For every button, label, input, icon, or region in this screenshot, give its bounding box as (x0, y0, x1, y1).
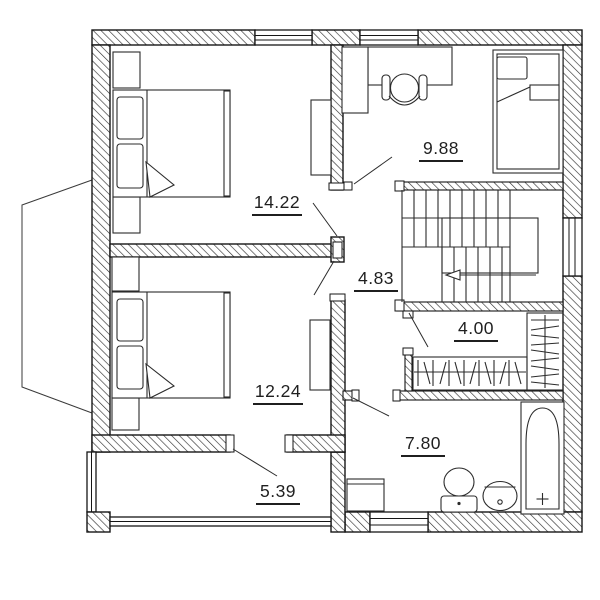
wall-bedroom2-balcony-right (287, 435, 345, 452)
wall-bedroom2-balcony-left (92, 435, 230, 452)
wall-top-mid (312, 30, 360, 45)
label-bedroom-1: 14.22 (254, 192, 300, 212)
wall-hall-bedroom2 (331, 300, 345, 452)
label-bathroom: 7.80 (405, 433, 441, 453)
floor-plan-page: 14.22 9.88 4.83 4.00 12.24 7.80 5.39 (0, 0, 600, 600)
label-balcony: 5.39 (260, 481, 296, 501)
nightstand (113, 52, 140, 88)
label-kids-room: 9.88 (423, 138, 459, 158)
washing-machine (347, 479, 384, 511)
dresser (310, 320, 330, 390)
wall-top-left (92, 30, 255, 45)
wall-bedroom1-kidsroom (331, 45, 343, 190)
wall-balcony-side (331, 452, 345, 532)
toilet (441, 468, 477, 512)
double-bed (112, 292, 230, 398)
nightstand (113, 197, 140, 233)
window-stairs (563, 218, 582, 276)
nightstand (112, 398, 139, 430)
wall-right-upper (563, 45, 582, 218)
label-bedroom-2: 12.24 (255, 381, 301, 401)
label-wardrobe: 4.00 (458, 318, 494, 338)
wall-stairs-bottom (397, 302, 563, 311)
wall-bath-top (395, 391, 563, 400)
window-bedroom1 (255, 30, 312, 45)
wall-bedroom1-bedroom2 (110, 244, 340, 257)
double-bed (113, 90, 230, 197)
wall-bottom-right (428, 512, 582, 532)
wall-left (92, 45, 110, 452)
window-bathroom (370, 512, 428, 532)
single-bed (493, 50, 563, 173)
wall-bottom-left (345, 512, 370, 532)
sink (483, 482, 517, 511)
wall-stairs-top (397, 182, 563, 190)
wall-wardrobe-left (405, 352, 412, 391)
bathtub (521, 402, 564, 514)
wall-top-right (418, 30, 582, 45)
balcony-pillar (87, 512, 110, 532)
nightstand (112, 257, 139, 291)
dresser (311, 100, 331, 175)
floor-plan-canvas: 14.22 9.88 4.83 4.00 12.24 7.80 5.39 (0, 0, 600, 600)
window-kidsroom (360, 30, 418, 45)
label-hallway: 4.83 (358, 268, 394, 288)
wall-right-lower (563, 276, 582, 512)
